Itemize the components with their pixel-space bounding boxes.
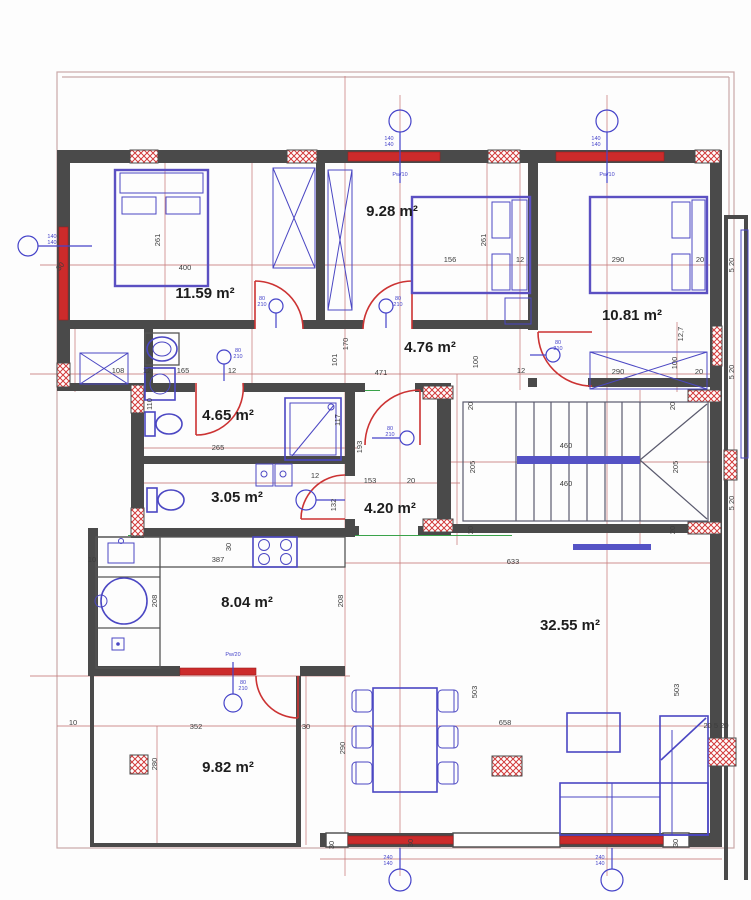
dimension-label: 460: [560, 441, 573, 450]
dimension-label: 460: [560, 479, 573, 488]
dimension-label: 387: [212, 555, 225, 564]
window-marker-circle: [601, 869, 623, 891]
dining-set: [352, 688, 458, 792]
dimension-label: 30: [302, 722, 310, 731]
dimension-label: 132: [329, 499, 338, 512]
dimension-label: 165: [177, 366, 190, 375]
window-marker-size-tag: 140: [384, 142, 393, 148]
bed-double-left: [115, 170, 208, 286]
dimension-label: 20: [696, 255, 704, 264]
window-marker-position-tag: Pw/20: [225, 652, 240, 658]
window-marker-size-tag: 140: [383, 861, 392, 867]
dimension-label: 100: [670, 357, 679, 370]
dimension-label: 20: [668, 402, 677, 410]
dimension-label: 400: [179, 263, 192, 272]
door-bedroom-middle: [363, 281, 412, 329]
window-marker-size-tag: 140: [591, 142, 600, 148]
dimension-label: 352: [190, 722, 203, 731]
dimension-label: 30: [224, 543, 233, 551]
dimension-label: 110: [145, 398, 154, 410]
door-terrace: [256, 676, 298, 718]
dimension-label: 20: [668, 526, 677, 534]
dimension-label: 10: [69, 718, 77, 727]
dimension-label: 30: [406, 839, 415, 847]
dimension-label: 205: [468, 461, 477, 474]
dimension-label: 633: [507, 557, 520, 566]
coffee-table: [567, 713, 620, 752]
room-label-bedroom-left: 11.59 m²: [175, 285, 234, 302]
dimension-label: 261: [153, 234, 162, 247]
bed-double-middle: [412, 197, 531, 324]
dimension-label: 658: [499, 718, 512, 727]
dimension-label: 5 20: [727, 258, 736, 273]
dimension-label: 12: [516, 255, 524, 264]
room-label-bedroom-right: 10.81 m²: [602, 307, 662, 324]
door-marker-circle: [217, 350, 231, 364]
dimension-label: 290: [338, 742, 347, 755]
dimension-label: 265: [212, 443, 225, 452]
dimension-label: 12,7: [676, 327, 685, 342]
window-marker-size-tag: 140: [595, 861, 604, 867]
room-label-living-room: 32.55 m²: [540, 617, 600, 634]
room-label-bathroom: 4.65 m²: [202, 407, 254, 424]
dimension-label: 30: [671, 839, 680, 847]
window-marker-circle: [224, 694, 242, 712]
toilet-bowl: [156, 414, 182, 434]
door-marker-size-tag: 210: [233, 354, 242, 360]
dimension-label: 12: [228, 366, 236, 375]
sofa: [560, 716, 708, 835]
dimension-label: 5 20: [727, 365, 736, 380]
dimension-label: 261: [479, 234, 488, 247]
dimension-label: 280: [150, 758, 159, 771]
window-marker-size-tag: 210: [238, 686, 247, 692]
dimension-label: 20: [466, 402, 475, 410]
dining-table: [373, 688, 437, 792]
door-marker-size-tag: 210: [385, 432, 394, 438]
dimension-label: 10: [88, 555, 96, 564]
dimension-label: 101: [330, 354, 339, 367]
dimension-label: 12: [143, 366, 151, 375]
room-label-hallway: 4.76 m²: [404, 339, 456, 356]
dimension-label: 503: [672, 684, 681, 697]
dimension-label: 30: [327, 841, 336, 849]
window-marker-circle: [18, 236, 38, 256]
room-label-entry-hall: 4.20 m²: [364, 500, 416, 517]
dimension-label: 100: [471, 356, 480, 369]
dimension-label: 156: [444, 255, 457, 264]
door-marker-circle: [269, 299, 283, 313]
door-marker-size-tag: 210: [553, 346, 562, 352]
dimension-label: 471: [375, 368, 388, 377]
dimension-label: 153: [364, 476, 377, 485]
toilet-tank: [145, 412, 155, 436]
room-label-wc: 3.05 m²: [211, 489, 263, 506]
bed-double-right: [590, 197, 707, 293]
wardrobe-left: [273, 168, 315, 268]
door-marker-size-tag: 210: [393, 302, 402, 308]
dimension-label: 12: [311, 471, 319, 480]
room-label-kitchen: 8.04 m²: [221, 594, 273, 611]
dimension-label: 12: [517, 366, 525, 375]
wardrobe-middle: [328, 170, 352, 310]
dimension-label: 20: [407, 476, 415, 485]
dimension-label: 20 5 20: [703, 721, 728, 730]
wc-toilet-bowl: [158, 490, 184, 510]
fridge: [101, 578, 147, 624]
stair-landing-bar: [517, 456, 640, 464]
door-marker-circle: [379, 299, 393, 313]
dimension-label: 205: [671, 461, 680, 474]
door-bedroom-right: [538, 332, 592, 386]
dimension-label: 290: [612, 367, 625, 376]
dimension-label: 117: [333, 414, 342, 426]
dimension-label: 170: [341, 338, 350, 351]
dimension-label: 208: [336, 595, 345, 608]
wc-toilet-tank: [147, 488, 157, 512]
door-marker-circle: [400, 431, 414, 445]
room-label-terrace: 9.82 m²: [202, 759, 254, 776]
dimension-label: 193: [355, 441, 364, 454]
dimension-label: 208: [150, 595, 159, 608]
dimension-label: 290: [612, 255, 625, 264]
dimension-label: 108: [112, 366, 125, 375]
dimension-label: 5 20: [727, 496, 736, 511]
room-label-bedroom-middle: 9.28 m²: [366, 203, 418, 220]
stair-handrail: [573, 544, 651, 550]
window-marker-size-tag: 140: [47, 240, 56, 246]
dimension-label: 20: [695, 367, 703, 376]
kitchen-sink: [108, 543, 134, 563]
dimension-label: 20: [466, 526, 475, 534]
floor-plan-canvas: 11.59 m² 9.28 m² 10.81 m² 4.76 m² 4.65 m…: [0, 0, 751, 900]
window-marker-position-tag: Pw/10: [392, 172, 407, 178]
door-marker-size-tag: 210: [257, 302, 266, 308]
door-wc: [301, 475, 345, 519]
dimension-label: 503: [470, 686, 479, 699]
window-marker-position-tag: Pw/10: [599, 172, 614, 178]
